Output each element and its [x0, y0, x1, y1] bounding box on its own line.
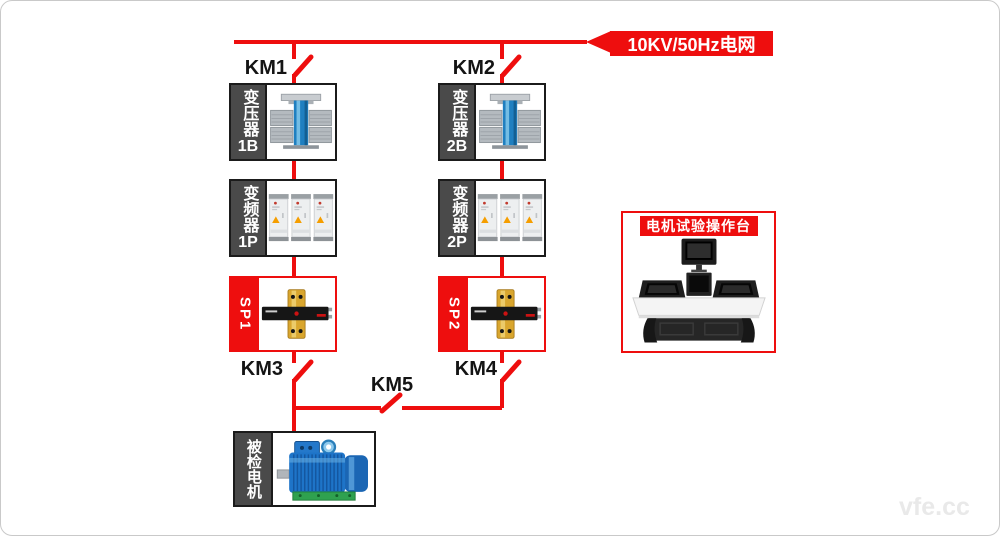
console-desk-icon [631, 236, 767, 348]
inverter-cabinets-icon [268, 188, 334, 248]
km4-label: KM4 [437, 358, 497, 381]
grid-source-label: 10KV/50Hz电网 [610, 31, 773, 56]
transformer-icon [476, 90, 544, 154]
watermark: vfe.cc [899, 493, 970, 522]
inverter-2p-name: 变频器 [449, 185, 466, 233]
sp2-box: SP2 [438, 276, 546, 352]
inverter-2p-side-label: 变频器 2P [440, 181, 476, 255]
grid-arrow-icon [586, 31, 611, 53]
km1-label: KM1 [227, 57, 287, 80]
inverter-1p-box: 变频器 1P [229, 179, 337, 257]
inverter-1p-code: 1P [238, 234, 258, 252]
inverter-2p-code: 2P [447, 234, 467, 252]
inverter-1p-side-label: 变频器 1P [231, 181, 267, 255]
transformer-2b-code: 2B [447, 138, 467, 156]
transformer-icon [267, 90, 335, 154]
power-sensor-icon [470, 286, 542, 342]
test-console-box: 电机试验操作台 [621, 211, 776, 353]
sp1-name: SP1 [237, 297, 254, 331]
transformer-1b-code: 1B [238, 138, 258, 156]
transformer-1b-side-label: 变压器 1B [231, 85, 267, 159]
transformer-2b-name: 变压器 [449, 89, 466, 137]
motor-name: 被检电机 [245, 439, 261, 499]
km3-switch-blade [295, 362, 311, 380]
inverter-cabinets-icon [477, 188, 543, 248]
transformer-2b-box: 变压器 2B [438, 83, 546, 161]
motor-under-test-box: 被检电机 [233, 431, 376, 507]
transformer-2b-side-label: 变压器 2B [440, 85, 476, 159]
inverter-2p-box: 变频器 2P [438, 179, 546, 257]
sp2-side-label: SP2 [440, 278, 468, 350]
km3-label: KM3 [223, 358, 283, 381]
wiring-diagram [1, 1, 1000, 536]
km1-switch-blade [295, 57, 311, 75]
motor-icon [274, 436, 374, 502]
km4-switch-blade [503, 362, 519, 380]
transformer-1b-name: 变压器 [240, 89, 257, 137]
km2-switch-blade [503, 57, 519, 75]
sp1-side-label: SP1 [231, 278, 259, 350]
transformer-1b-box: 变压器 1B [229, 83, 337, 161]
console-title: 电机试验操作台 [640, 216, 758, 236]
sp1-box: SP1 [229, 276, 337, 352]
km5-label: KM5 [352, 374, 432, 397]
power-sensor-icon [261, 286, 333, 342]
motor-side-label: 被检电机 [235, 433, 273, 505]
km5-switch-blade [382, 395, 400, 411]
diagram-canvas: 10KV/50Hz电网 KM1 KM2 KM3 KM4 KM5 变压器 1B 变… [0, 0, 1000, 536]
sp2-name: SP2 [446, 297, 463, 331]
km2-label: KM2 [435, 57, 495, 80]
inverter-1p-name: 变频器 [240, 185, 257, 233]
